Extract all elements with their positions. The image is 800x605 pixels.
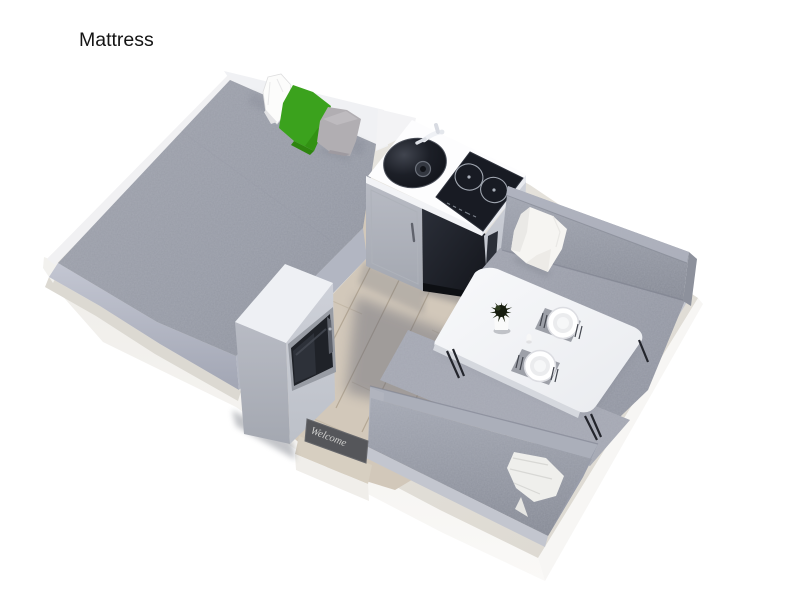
svg-text:Mattress: Mattress <box>79 29 154 51</box>
